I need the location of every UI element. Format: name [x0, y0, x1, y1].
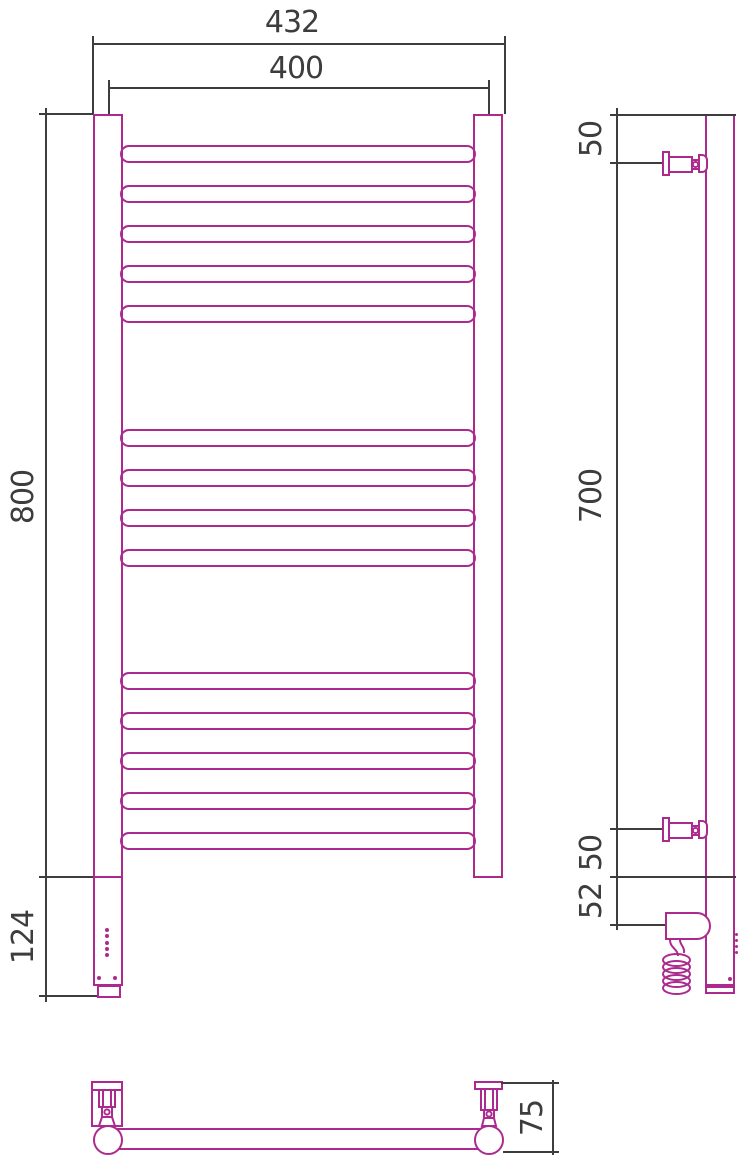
extension-line	[610, 828, 663, 830]
led-indicator-dot	[105, 934, 109, 938]
led-indicator-dot	[105, 928, 109, 932]
rung	[120, 305, 476, 323]
rung	[120, 185, 476, 203]
dim-label-wall-depth: 75	[518, 1068, 548, 1167]
wall-bracket-bottom-right	[470, 1078, 510, 1130]
riser-cross-section-left	[93, 1125, 123, 1155]
side-led-mark	[735, 951, 738, 954]
extension-line	[610, 924, 665, 926]
heater-housing-cap	[97, 985, 121, 998]
dim-label-heater-axis-offset: 52	[577, 851, 607, 951]
rung	[120, 265, 476, 283]
extension-line	[39, 113, 93, 115]
extension-line	[108, 80, 110, 114]
led-indicator-dot	[105, 947, 109, 951]
side-led-mark	[735, 939, 738, 942]
wall-bracket-side-top	[660, 148, 708, 178]
rung	[120, 672, 476, 690]
left-riser	[93, 114, 123, 878]
rung	[120, 752, 476, 770]
dimension-line	[109, 87, 490, 89]
extension-line	[504, 36, 506, 114]
side-riser-tube	[705, 114, 735, 986]
dim-label-rail-height: 800	[9, 447, 39, 547]
rung	[120, 792, 476, 810]
dim-label-overall-width: 432	[242, 8, 342, 38]
dim-label-pipe-center-distance: 400	[246, 54, 346, 84]
extension-line	[92, 36, 94, 114]
side-screw-dot	[728, 977, 732, 981]
dimension-line	[45, 108, 47, 1002]
housing-screw-dot	[113, 976, 117, 980]
power-cable-coil	[650, 938, 706, 1000]
rung	[120, 145, 476, 163]
dimension-line	[93, 43, 505, 45]
extension-line	[610, 876, 736, 878]
dim-label-top-bracket-offset: 50	[577, 89, 607, 189]
technical-drawing-canvas: 432 400 800 124 50 700 50 52	[0, 0, 750, 1167]
rung	[120, 712, 476, 730]
wall-bracket-side-bottom	[660, 814, 708, 844]
side-led-mark	[735, 933, 738, 936]
bottom-rail-bar	[108, 1128, 489, 1150]
rung	[120, 225, 476, 243]
led-indicator-dot	[105, 941, 109, 945]
heater-cartridge	[665, 912, 711, 940]
dim-label-housing-height: 124	[9, 887, 39, 987]
riser-cross-section-right	[474, 1125, 504, 1155]
led-indicator-dot	[105, 953, 109, 957]
housing-screw-dot	[97, 976, 101, 980]
right-riser	[473, 114, 503, 878]
dim-label-bracket-span: 700	[577, 446, 607, 546]
rung	[120, 469, 476, 487]
dimension-line	[552, 1080, 554, 1155]
extension-line	[610, 114, 736, 116]
extension-line	[488, 80, 490, 114]
side-led-mark	[735, 945, 738, 948]
rung	[120, 429, 476, 447]
extension-line	[39, 876, 93, 878]
rung	[120, 549, 476, 567]
extension-line	[610, 162, 663, 164]
rung	[120, 509, 476, 527]
extension-line	[39, 995, 97, 997]
rung	[120, 832, 476, 850]
side-riser-bottom-cap	[705, 986, 735, 994]
wall-bracket-bottom-left	[88, 1078, 128, 1130]
dimension-line	[616, 108, 618, 930]
